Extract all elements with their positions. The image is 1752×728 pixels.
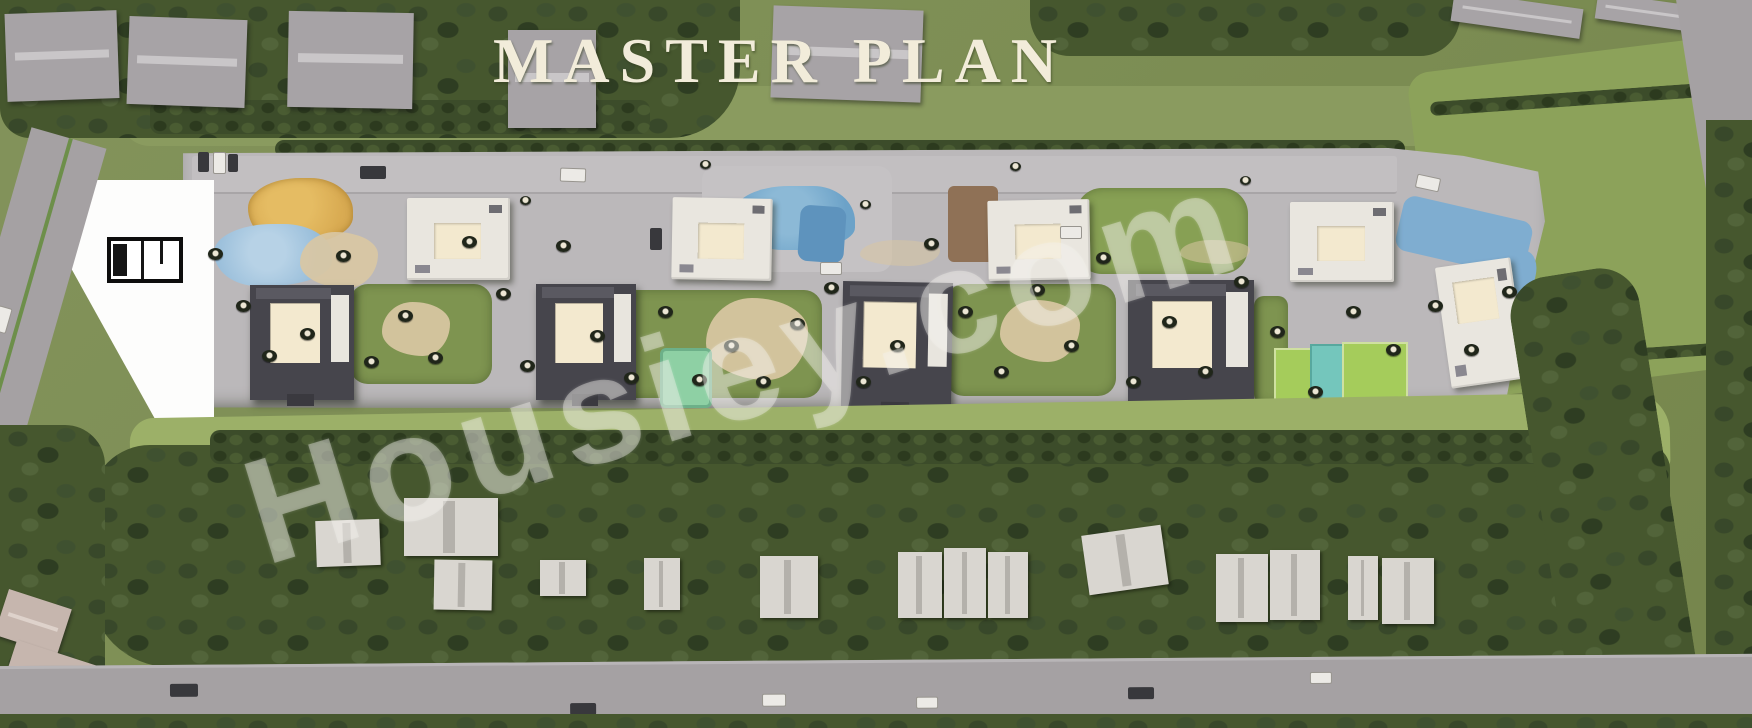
bush-marker: [1270, 326, 1285, 338]
parked-car: [213, 152, 226, 174]
tower-block: [671, 197, 772, 281]
building-footprint-diagram: [107, 237, 183, 283]
neighbour-house: [4, 10, 119, 102]
tower-terrace: [1452, 277, 1499, 324]
cottage: [1270, 550, 1320, 620]
bush-marker: [462, 236, 477, 248]
bush-marker: [1464, 344, 1479, 356]
tower-block: [407, 198, 510, 280]
cottage: [1216, 554, 1268, 622]
bush-marker: [262, 350, 277, 362]
tower-terrace: [698, 222, 745, 259]
bush-marker: [1240, 176, 1251, 185]
cottage: [1081, 525, 1169, 596]
bush-marker: [1010, 162, 1021, 171]
car: [360, 166, 386, 179]
cottage: [540, 560, 586, 596]
bush-marker: [1126, 376, 1141, 388]
bush-marker: [236, 300, 251, 312]
roadside-hedge-bottom: [0, 714, 1752, 728]
parked-car: [228, 154, 238, 172]
corner-rooftop: [1451, 0, 1584, 39]
parked-car: [198, 152, 209, 172]
neighbour-house: [287, 11, 414, 109]
cottage: [988, 552, 1028, 618]
bush-marker: [208, 248, 223, 260]
bush-marker: [1502, 286, 1517, 298]
tower-block: [1290, 202, 1394, 282]
bush-marker: [700, 160, 711, 169]
car: [650, 228, 662, 250]
car: [762, 694, 786, 707]
bush-marker: [496, 288, 511, 300]
car: [916, 697, 938, 709]
car: [170, 684, 198, 697]
neighbour-house: [127, 16, 248, 108]
tower-terrace: [1317, 226, 1365, 261]
far-east-trees: [1706, 120, 1752, 728]
bush-marker: [1346, 306, 1361, 318]
bush-marker: [300, 328, 315, 340]
car: [1128, 687, 1154, 699]
cottage: [1382, 558, 1434, 624]
cottage: [434, 559, 493, 610]
car: [0, 305, 13, 334]
cottage: [944, 548, 986, 618]
master-plan-aerial-view: Housiey.com MASTER PLAN: [0, 0, 1752, 728]
tower-block-dark: [250, 285, 354, 400]
bush-marker: [336, 250, 351, 262]
garden-path-patch: [382, 302, 450, 356]
cottage: [1348, 556, 1378, 620]
bush-marker: [860, 200, 871, 209]
bush-marker: [1198, 366, 1213, 378]
bush-marker: [1386, 344, 1401, 356]
bush-marker: [1308, 386, 1323, 398]
bush-marker: [1428, 300, 1443, 312]
cottage: [644, 558, 680, 610]
bush-marker: [398, 310, 413, 322]
bush-marker: [520, 196, 531, 205]
tower-wing: [331, 295, 349, 362]
cottage: [898, 552, 942, 618]
car: [1310, 672, 1332, 684]
bush-marker: [556, 240, 571, 252]
cottage: [760, 556, 818, 618]
bush-marker: [428, 352, 443, 364]
bush-marker: [364, 356, 379, 368]
footprint-block: [113, 244, 127, 276]
page-title: MASTER PLAN: [420, 24, 1140, 98]
car: [560, 168, 586, 183]
